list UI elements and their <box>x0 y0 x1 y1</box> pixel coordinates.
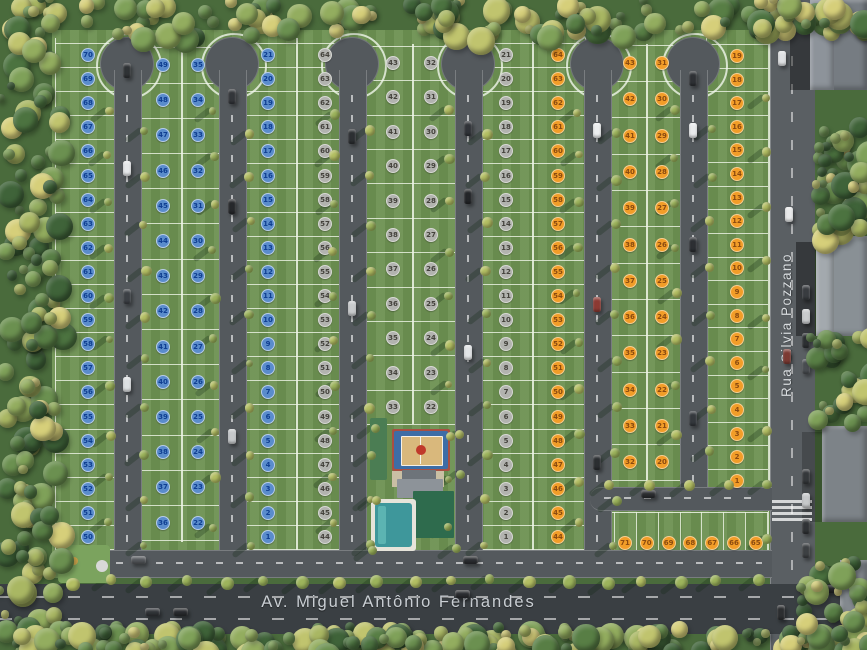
lot-marker: 49 <box>551 410 565 424</box>
border-tree <box>561 643 572 650</box>
palm-tree <box>371 424 380 433</box>
lot-line <box>140 118 181 119</box>
building-roof <box>822 426 867 522</box>
lot-marker: 58 <box>551 193 565 207</box>
lot-marker: 59 <box>551 169 565 183</box>
lot-line <box>181 505 219 506</box>
palm-tree <box>103 151 111 159</box>
lot-marker: 70 <box>640 536 654 550</box>
lot-marker: 1 <box>499 530 513 544</box>
palm-tree <box>245 265 253 273</box>
lot-marker: 25 <box>191 410 205 424</box>
border-tree <box>268 641 278 650</box>
lot-line <box>532 236 584 237</box>
palm-tree <box>221 577 234 590</box>
palm-tree <box>705 446 714 455</box>
palm-tree <box>364 403 375 414</box>
palm-tree <box>762 534 772 544</box>
palm-tree <box>707 405 716 414</box>
palm-tree <box>610 448 620 458</box>
lot-marker: 54 <box>551 289 565 303</box>
vehicle <box>802 285 810 300</box>
lot-marker: 29 <box>655 129 669 143</box>
border-tree <box>49 548 75 574</box>
vehicle <box>145 608 160 616</box>
border-tree <box>819 126 830 137</box>
lot-line <box>412 183 455 184</box>
lot-marker: 25 <box>424 297 438 311</box>
border-tree <box>43 583 63 603</box>
vehicle <box>802 543 810 558</box>
lot-marker: 22 <box>655 383 669 397</box>
border-tree <box>15 169 27 181</box>
palm-tree <box>246 451 254 459</box>
lot-line <box>706 398 768 399</box>
lot-marker: 45 <box>156 199 170 213</box>
lot-line <box>296 501 339 502</box>
lot-line <box>706 422 768 423</box>
palm-tree <box>140 172 150 182</box>
lot-marker: 62 <box>81 241 95 255</box>
palm-tree <box>671 244 679 252</box>
vehicle <box>593 297 601 312</box>
lot-marker: 41 <box>386 125 400 139</box>
palm-tree <box>445 340 456 351</box>
border-tree <box>13 107 38 132</box>
vehicle <box>348 129 356 144</box>
lot-marker: 63 <box>318 72 332 86</box>
palm-tree <box>636 576 647 587</box>
border-tree <box>35 27 46 38</box>
border-tree <box>198 5 212 19</box>
palm-tree <box>724 480 734 490</box>
palm-tree <box>483 359 491 367</box>
border-tree <box>22 39 46 63</box>
lot-line <box>610 117 646 118</box>
lot-marker: 14 <box>499 217 513 231</box>
lot-marker: 71 <box>618 536 632 550</box>
border-tree <box>819 18 829 28</box>
lot-line <box>245 477 296 478</box>
border-tree <box>811 581 823 593</box>
lot-line <box>55 91 114 92</box>
lot-line <box>140 540 181 541</box>
border-tree <box>13 628 31 646</box>
border-tree <box>28 6 39 17</box>
border-tree <box>320 1 344 25</box>
border-tree <box>361 636 378 650</box>
border-tree <box>131 27 156 52</box>
lot-marker: 10 <box>261 313 275 327</box>
lot-marker: 20 <box>261 72 275 86</box>
lot-line <box>532 188 584 189</box>
border-tree <box>815 561 825 571</box>
palm-tree <box>210 381 219 390</box>
palm-tree <box>670 154 678 162</box>
lot-line <box>481 260 532 261</box>
palm-tree <box>105 107 114 116</box>
lot-marker: 46 <box>156 164 170 178</box>
vehicle <box>123 161 131 176</box>
lot-line <box>532 308 584 309</box>
lot-line <box>365 252 412 253</box>
border-tree <box>30 416 56 442</box>
border-tree <box>830 133 841 144</box>
lot-line <box>296 332 339 333</box>
lot-line <box>245 429 296 430</box>
lot-marker: 1 <box>261 530 275 544</box>
border-tree <box>801 19 811 29</box>
lot-line <box>481 380 532 381</box>
lot-marker: 8 <box>730 309 744 323</box>
lot-marker: 20 <box>499 72 513 86</box>
lot-line <box>365 287 412 288</box>
palm-tree <box>372 496 381 505</box>
palm-tree <box>452 544 461 553</box>
lot-marker: 43 <box>623 56 637 70</box>
border-tree <box>497 637 515 650</box>
lot-marker: 14 <box>261 217 275 231</box>
lot-marker: 6 <box>261 410 275 424</box>
lot-line <box>532 356 584 357</box>
lot-marker: 65 <box>81 169 95 183</box>
lot-line <box>412 287 455 288</box>
lot-line <box>706 186 768 187</box>
vehicle <box>802 519 810 534</box>
lot-marker: 40 <box>623 165 637 179</box>
vehicle <box>455 590 470 598</box>
palm-tree <box>367 311 376 320</box>
lot-line <box>140 153 181 154</box>
border-tree <box>761 629 770 638</box>
lot-marker: 47 <box>318 458 332 472</box>
lot-marker: 31 <box>191 199 205 213</box>
border-tree <box>813 339 822 348</box>
palm-tree <box>612 496 622 506</box>
lot-marker: 52 <box>81 482 95 496</box>
lot-line <box>532 212 584 213</box>
palm-tree <box>444 154 454 164</box>
lot-line <box>365 218 412 219</box>
lot-line <box>610 190 646 191</box>
lot-marker: 21 <box>499 48 513 62</box>
vehicle <box>348 301 356 316</box>
lot-marker: 13 <box>730 191 744 205</box>
palm-tree <box>366 267 375 276</box>
lot-line <box>140 399 181 400</box>
lot-marker: 30 <box>424 125 438 139</box>
lot-line <box>55 260 114 261</box>
border-tree <box>720 17 730 27</box>
palm-tree <box>762 366 769 373</box>
lot-marker: 9 <box>730 285 744 299</box>
lot-marker: 21 <box>261 48 275 62</box>
palm-tree <box>482 217 493 228</box>
lot-marker: 41 <box>623 129 637 143</box>
vehicle <box>593 123 601 138</box>
lot-marker: 13 <box>261 241 275 255</box>
lot-line <box>610 444 646 445</box>
border-tree <box>850 162 867 184</box>
lot-line <box>55 212 114 213</box>
vehicle <box>123 377 131 392</box>
palm-tree <box>574 197 584 207</box>
lot-marker: 22 <box>424 400 438 414</box>
palm-tree <box>482 450 493 461</box>
lot-line <box>181 223 219 224</box>
lot-line <box>610 480 646 481</box>
lot-line <box>55 501 114 502</box>
border-tree <box>99 627 111 639</box>
palm-tree <box>245 492 254 501</box>
lot-line <box>245 501 296 502</box>
lot-marker: 45 <box>551 506 565 520</box>
palm-tree <box>366 354 373 361</box>
palm-tree <box>482 129 492 139</box>
lot-line <box>55 188 114 189</box>
lot-line <box>245 308 296 309</box>
lot-line <box>706 115 768 116</box>
lot-line <box>706 233 768 234</box>
palm-tree <box>611 175 622 186</box>
lot-line <box>532 139 584 140</box>
vehicle <box>123 289 131 304</box>
palm-tree <box>705 356 715 366</box>
border-tree <box>467 27 495 55</box>
lot-marker: 47 <box>551 458 565 472</box>
lot-line <box>706 445 768 446</box>
border-tree <box>21 312 42 333</box>
lot-line <box>140 435 181 436</box>
lot-marker: 30 <box>191 234 205 248</box>
vehicle <box>689 411 697 426</box>
lot-line <box>481 236 532 237</box>
palm-tree <box>445 381 452 388</box>
border-tree <box>172 12 195 35</box>
vehicle <box>641 490 656 498</box>
lot-line <box>412 424 455 425</box>
lot-marker: 15 <box>261 193 275 207</box>
palm-tree <box>139 221 147 229</box>
lot-line <box>245 236 296 237</box>
palm-tree <box>244 310 253 319</box>
lot-line <box>140 294 181 295</box>
lot-marker: 10 <box>499 313 513 327</box>
palm-tree <box>210 152 219 161</box>
border-tree <box>7 82 15 90</box>
lot-line <box>532 380 584 381</box>
lot-line <box>706 351 768 352</box>
border-tree <box>43 180 57 194</box>
lot-line <box>481 477 532 478</box>
border-tree <box>46 213 73 240</box>
vehicle <box>593 455 601 470</box>
palm-tree <box>329 292 337 300</box>
lot-marker: 33 <box>623 419 637 433</box>
lot-line <box>55 356 114 357</box>
palm-tree <box>106 574 117 585</box>
lot-line <box>610 372 646 373</box>
palm-tree <box>610 310 619 319</box>
lot-line <box>245 380 296 381</box>
border-tree <box>17 531 32 546</box>
border-tree <box>46 275 72 301</box>
palm-tree <box>573 289 580 296</box>
lot-marker: 28 <box>655 165 669 179</box>
lot-marker: 59 <box>81 313 95 327</box>
border-tree <box>47 402 61 416</box>
lot-marker: 50 <box>81 530 95 544</box>
palm-tree <box>480 494 490 504</box>
palm-tree <box>455 430 464 439</box>
lot-line <box>532 332 584 333</box>
lot-marker: 39 <box>386 194 400 208</box>
palm-tree <box>367 451 376 460</box>
lot-marker: 37 <box>623 274 637 288</box>
bottom-collector-street <box>96 550 772 578</box>
lot-line <box>706 375 768 376</box>
border-tree <box>19 212 40 233</box>
lot-line <box>706 469 768 470</box>
vehicle <box>131 556 146 564</box>
palm-tree <box>141 266 152 277</box>
lot-marker: 64 <box>81 193 95 207</box>
lot-line <box>532 91 584 92</box>
lot-line <box>181 470 219 471</box>
lot-marker: 18 <box>730 73 744 87</box>
palm-tree <box>105 381 114 390</box>
lot-marker: 32 <box>191 164 205 178</box>
lot-marker: 15 <box>499 193 513 207</box>
lot-marker: 28 <box>424 194 438 208</box>
lot-line <box>532 453 584 454</box>
lot-line <box>481 212 532 213</box>
border-tree <box>43 461 68 486</box>
lot-line <box>646 408 680 409</box>
palm-tree <box>762 480 772 490</box>
vehicle <box>464 189 472 204</box>
border-tree <box>48 140 75 167</box>
lot-line <box>181 540 219 541</box>
palm-tree <box>333 577 345 589</box>
border-tree <box>849 585 867 603</box>
palm-tree <box>575 151 582 158</box>
border-tree <box>405 635 422 650</box>
border-tree <box>42 260 57 275</box>
vehicle <box>123 63 131 78</box>
vehicle <box>464 121 472 136</box>
border-tree <box>566 14 585 33</box>
lot-marker: 46 <box>551 482 565 496</box>
palm-tree <box>365 171 374 180</box>
border-tree <box>24 485 38 499</box>
street-centerline <box>231 95 233 561</box>
palm-tree <box>445 248 454 257</box>
lot-line <box>481 115 532 116</box>
lot-marker: 69 <box>81 72 95 86</box>
lot-marker: 36 <box>156 516 170 530</box>
lot-line <box>245 163 296 164</box>
lot-marker: 6 <box>499 410 513 424</box>
lot-marker: 25 <box>655 274 669 288</box>
palm-tree <box>244 172 254 182</box>
lot-line <box>245 115 296 116</box>
vehicle <box>689 123 697 138</box>
lot-marker: 34 <box>386 366 400 380</box>
palm-tree <box>708 125 716 133</box>
palm-tree <box>672 288 682 298</box>
lot-line <box>532 501 584 502</box>
border-tree <box>616 12 625 21</box>
lot-marker: 43 <box>386 56 400 70</box>
border-tree <box>34 95 47 108</box>
vehicle <box>802 469 810 484</box>
lot-line <box>140 188 181 189</box>
border-tree <box>519 625 531 637</box>
border-tree <box>558 625 572 639</box>
palm-tree <box>141 354 149 362</box>
palm-tree <box>140 403 149 412</box>
lot-marker: 53 <box>81 458 95 472</box>
lot-line <box>532 260 584 261</box>
vehicle <box>228 199 236 214</box>
lot-line <box>181 364 219 365</box>
border-tree <box>811 186 830 205</box>
border-tree <box>814 142 825 153</box>
lot-line <box>181 188 219 189</box>
lot-line <box>365 115 412 116</box>
lot-marker: 57 <box>551 217 565 231</box>
border-tree <box>18 465 28 475</box>
lot-line <box>646 190 680 191</box>
lot-marker: 4 <box>261 458 275 472</box>
lot-marker: 63 <box>551 72 565 86</box>
border-tree <box>611 25 635 49</box>
lot-line <box>296 188 339 189</box>
border-tree <box>140 643 149 650</box>
lot-marker: 4 <box>499 458 513 472</box>
palm-tree <box>671 334 681 344</box>
lot-line <box>296 356 339 357</box>
palm-tree <box>644 480 655 491</box>
lot-marker: 34 <box>623 383 637 397</box>
palm-tree <box>106 431 116 441</box>
palm-tree <box>66 578 79 591</box>
palm-tree <box>211 200 220 209</box>
lot-marker: 55 <box>551 265 565 279</box>
border-tree <box>7 576 35 604</box>
lot-marker: 24 <box>655 310 669 324</box>
border-tree <box>7 270 17 280</box>
lot-marker: 26 <box>655 238 669 252</box>
lot-line <box>55 380 114 381</box>
lot-marker: 2 <box>499 506 513 520</box>
lot-line <box>245 260 296 261</box>
palm-tree <box>480 266 490 276</box>
lot-marker: 44 <box>551 530 565 544</box>
lot-marker: 64 <box>318 48 332 62</box>
lot-marker: 26 <box>191 375 205 389</box>
vehicle <box>464 345 472 360</box>
lot-marker: 12 <box>261 265 275 279</box>
lot-marker: 53 <box>318 313 332 327</box>
street-centerline <box>351 95 353 561</box>
lot-marker: 46 <box>318 482 332 496</box>
palm-tree <box>140 576 152 588</box>
lot-line <box>481 332 532 333</box>
street-centerline <box>692 95 694 490</box>
lot-marker: 32 <box>424 56 438 70</box>
